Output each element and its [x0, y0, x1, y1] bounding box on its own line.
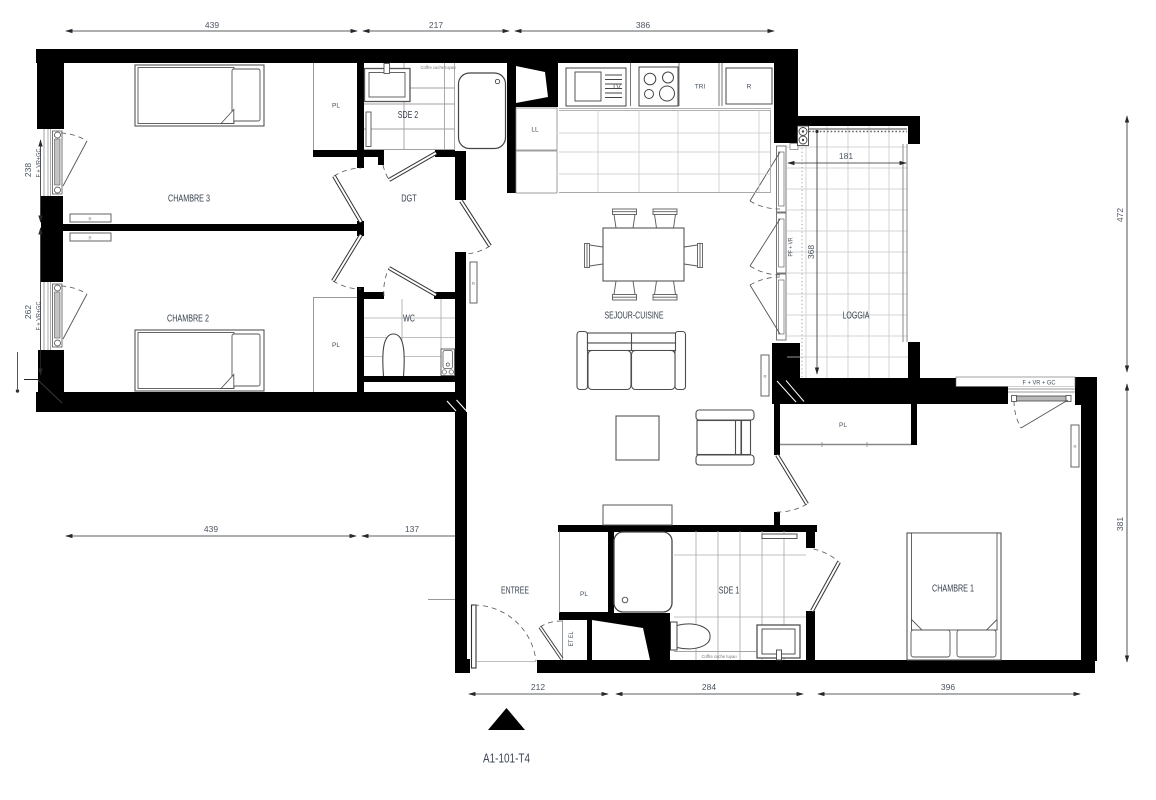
svg-text:F + VR + GC: F + VR + GC	[1023, 380, 1056, 387]
svg-text:137: 137	[405, 524, 419, 534]
svg-text:R: R	[88, 236, 91, 241]
svg-text:R: R	[88, 217, 91, 222]
svg-text:472: 472	[1115, 208, 1125, 222]
svg-text:262: 262	[23, 305, 33, 319]
svg-text:Coffre cache tuyau: Coffre cache tuyau	[701, 654, 737, 659]
svg-text:381: 381	[1115, 517, 1125, 531]
svg-text:CHAMBRE 1: CHAMBRE 1	[932, 584, 974, 595]
svg-text:F + VR+GC: F + VR+GC	[36, 148, 43, 177]
svg-text:439: 439	[205, 20, 219, 30]
svg-text:212: 212	[531, 682, 545, 692]
svg-text:PL: PL	[332, 103, 340, 110]
svg-text:PL: PL	[580, 591, 588, 598]
svg-text:A1-101-T4: A1-101-T4	[483, 752, 530, 766]
svg-text:217: 217	[429, 20, 443, 30]
svg-text:PF + VR: PF + VR	[788, 237, 795, 256]
svg-text:396: 396	[941, 682, 955, 692]
svg-text:181: 181	[839, 151, 853, 161]
svg-text:R: R	[763, 374, 766, 379]
svg-text:R: R	[472, 281, 475, 286]
svg-text:PL: PL	[839, 422, 847, 429]
svg-text:386: 386	[636, 20, 650, 30]
svg-text:F + VR+GC: F + VR+GC	[36, 301, 43, 330]
svg-text:ENTREE: ENTREE	[501, 586, 529, 597]
svg-text:R: R	[1073, 444, 1076, 449]
svg-text:ET EL: ET EL	[568, 631, 575, 646]
svg-text:DGT: DGT	[401, 194, 417, 205]
svg-text:238: 238	[23, 163, 33, 177]
svg-text:SEJOUR-CUISINE: SEJOUR-CUISINE	[605, 311, 664, 322]
svg-text:CHAMBRE 3: CHAMBRE 3	[168, 194, 210, 205]
svg-text:SDE 1: SDE 1	[719, 586, 740, 597]
svg-text:CHAMBRE 2: CHAMBRE 2	[167, 314, 209, 325]
svg-text:LV: LV	[613, 84, 621, 91]
svg-text:LOGGIA: LOGGIA	[843, 311, 870, 322]
svg-text:SDE 2: SDE 2	[398, 110, 419, 121]
svg-text:TRI: TRI	[695, 84, 706, 91]
svg-text:439: 439	[204, 524, 218, 534]
svg-text:WC: WC	[403, 314, 415, 325]
svg-text:LL: LL	[531, 127, 539, 134]
svg-text:284: 284	[702, 682, 716, 692]
svg-text:PL: PL	[332, 342, 340, 349]
svg-text:368: 368	[806, 245, 816, 259]
svg-text:R: R	[747, 84, 752, 91]
svg-text:Coffre cache tuyau: Coffre cache tuyau	[420, 65, 456, 70]
